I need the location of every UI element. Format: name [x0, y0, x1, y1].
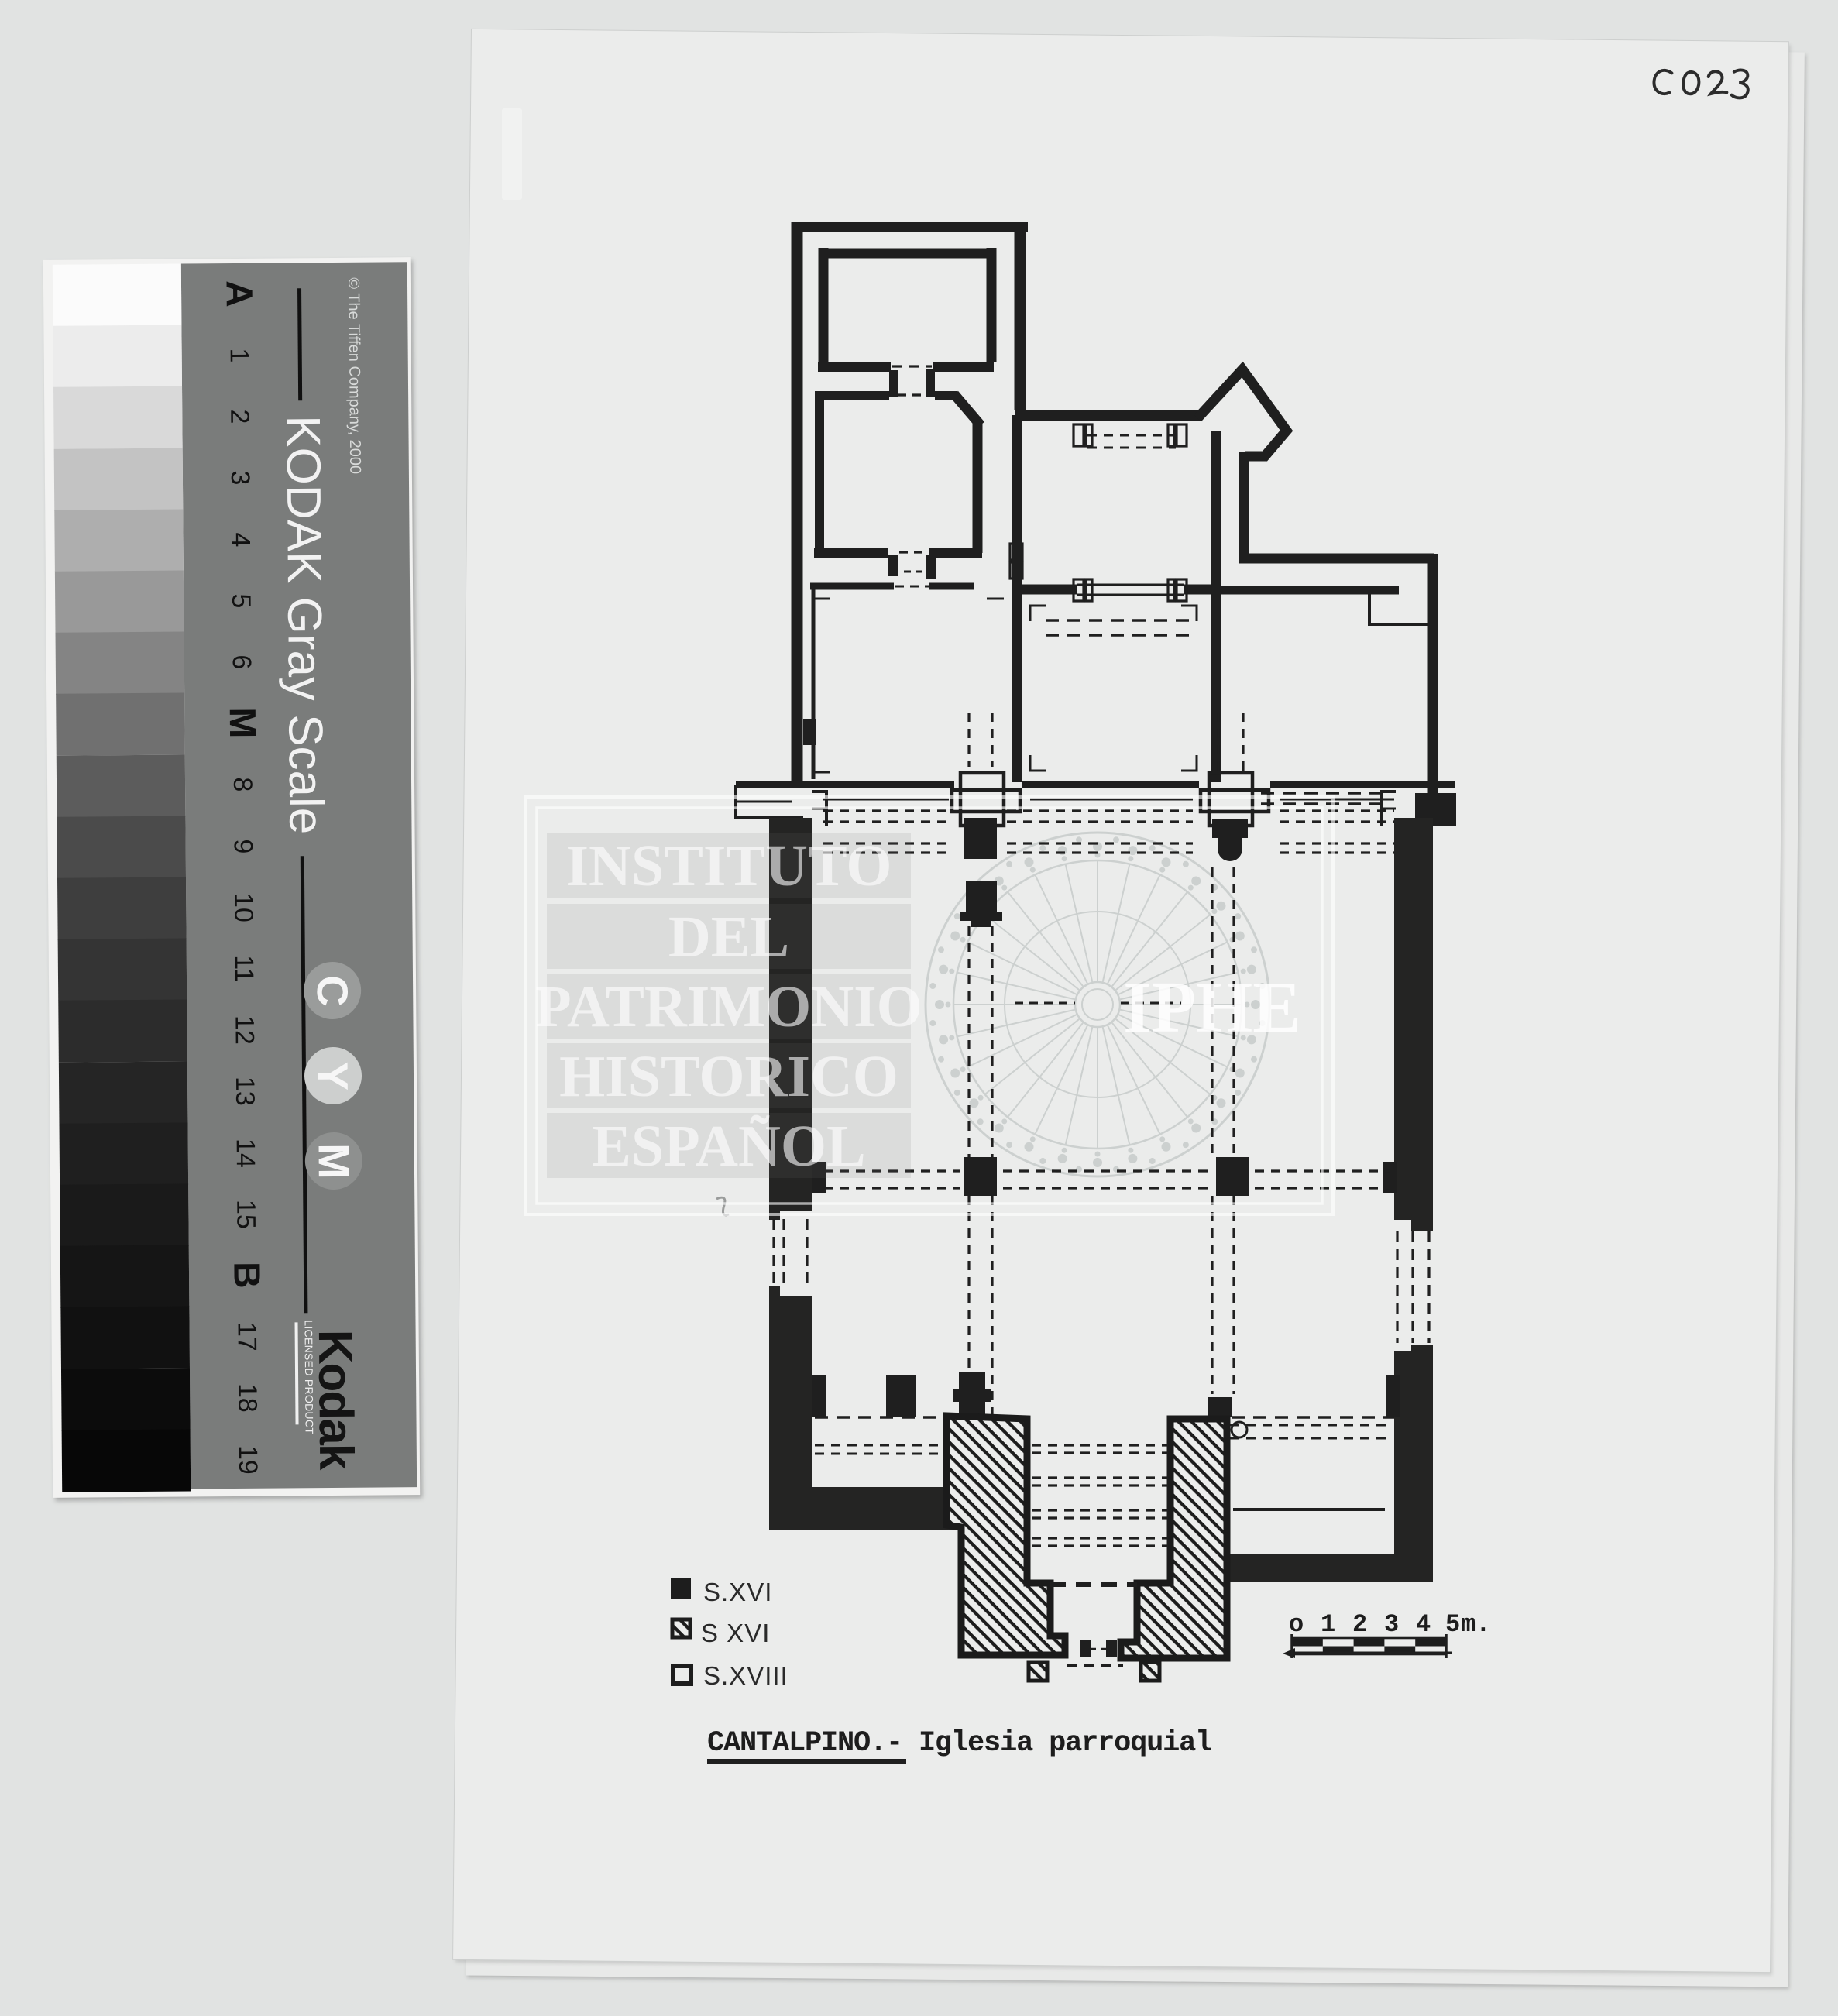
svg-text:PATRIMONIO: PATRIMONIO: [535, 974, 922, 1039]
svg-text:ESPAÑOL: ESPAÑOL: [592, 1114, 865, 1179]
svg-text:INSTITUTO: INSTITUTO: [565, 833, 892, 898]
svg-text:HISTORICO: HISTORICO: [559, 1044, 898, 1109]
svg-text:IPHE: IPHE: [1123, 967, 1301, 1048]
svg-text:DEL: DEL: [668, 905, 789, 970]
